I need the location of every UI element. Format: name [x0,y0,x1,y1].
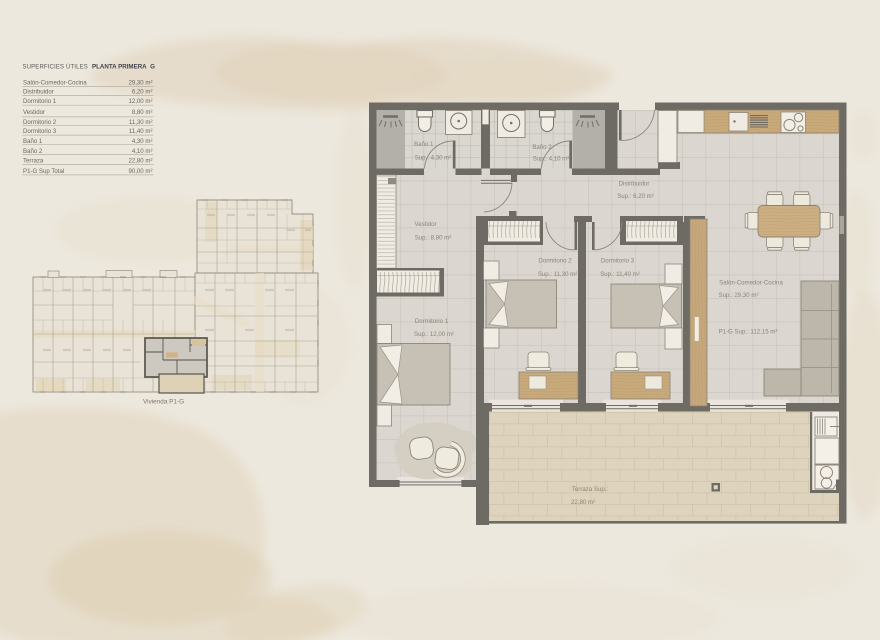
svg-text:Salón-Comedor-Cocina: Salón-Comedor-Cocina [719,280,783,287]
svg-text:12,00 m²: 12,00 m² [128,98,152,105]
svg-text:Baño 1: Baño 1 [23,138,43,145]
svg-text:Salón-Comedor-Cocina: Salón-Comedor-Cocina [23,80,87,87]
svg-text:SUPERFICIES ÚTILES: SUPERFICIES ÚTILES [23,64,88,71]
svg-text:Sup.: 29,30 m²: Sup.: 29,30 m² [719,292,759,299]
svg-text:Baño 1: Baño 1 [414,141,434,148]
svg-text:Vestidor: Vestidor [23,109,45,116]
svg-text:Sup.: 11,40 m²: Sup.: 11,40 m² [600,271,640,278]
svg-text:29,30 m²: 29,30 m² [128,80,152,87]
svg-text:Dormitorio 1: Dormitorio 1 [415,318,449,325]
svg-text:Sup.: 4,30 m²: Sup.: 4,30 m² [415,155,452,162]
svg-text:4,10 m²: 4,10 m² [132,148,153,155]
svg-text:Vivienda P1-G: Vivienda P1-G [143,399,184,406]
svg-text:22,80 m²: 22,80 m² [571,499,595,506]
svg-text:Sup.: 12,00 m²: Sup.: 12,00 m² [414,331,454,338]
svg-text:11,40 m²: 11,40 m² [129,128,153,135]
svg-text:P1-G Sup Total: P1-G Sup Total [23,168,64,175]
svg-text:Terraza: Terraza [23,157,44,164]
svg-text:Baño 2: Baño 2 [23,148,43,155]
svg-text:Dormitorio 2: Dormitorio 2 [538,258,572,265]
svg-text:Dormitorio 3: Dormitorio 3 [23,128,57,135]
svg-text:90,00 m²: 90,00 m² [128,168,152,175]
svg-text:Sup.: 4,10 m²: Sup.: 4,10 m² [533,156,570,163]
svg-text:Baño 2: Baño 2 [532,144,552,151]
svg-text:Sup.: 11,30 m²: Sup.: 11,30 m² [538,271,578,278]
svg-text:PLANTA PRIMERA G: PLANTA PRIMERA G [92,64,155,71]
svg-text:Distribuidor: Distribuidor [619,181,650,188]
svg-text:8,80 m²: 8,80 m² [132,109,153,116]
svg-text:Dormitorio 2: Dormitorio 2 [23,119,57,126]
svg-text:11,30 m²: 11,30 m² [129,119,153,126]
svg-text:4,30 m²: 4,30 m² [132,138,153,145]
svg-text:Dormitorio 3: Dormitorio 3 [601,258,635,265]
svg-text:Vestidor: Vestidor [414,221,436,228]
svg-text:22,80 m²: 22,80 m² [128,157,152,164]
svg-text:Distribuidor: Distribuidor [23,89,54,96]
svg-text:Sup.: 6,20 m²: Sup.: 6,20 m² [617,193,654,200]
svg-text:Dormitorio 1: Dormitorio 1 [23,98,57,105]
svg-text:Terraza Sup.:: Terraza Sup.: [572,486,609,493]
svg-text:Sup.: 8,80 m²: Sup.: 8,80 m² [415,235,452,242]
svg-text:P1-G Sup.: 112,15 m²: P1-G Sup.: 112,15 m² [719,329,778,336]
svg-text:6,20 m²: 6,20 m² [132,89,153,96]
